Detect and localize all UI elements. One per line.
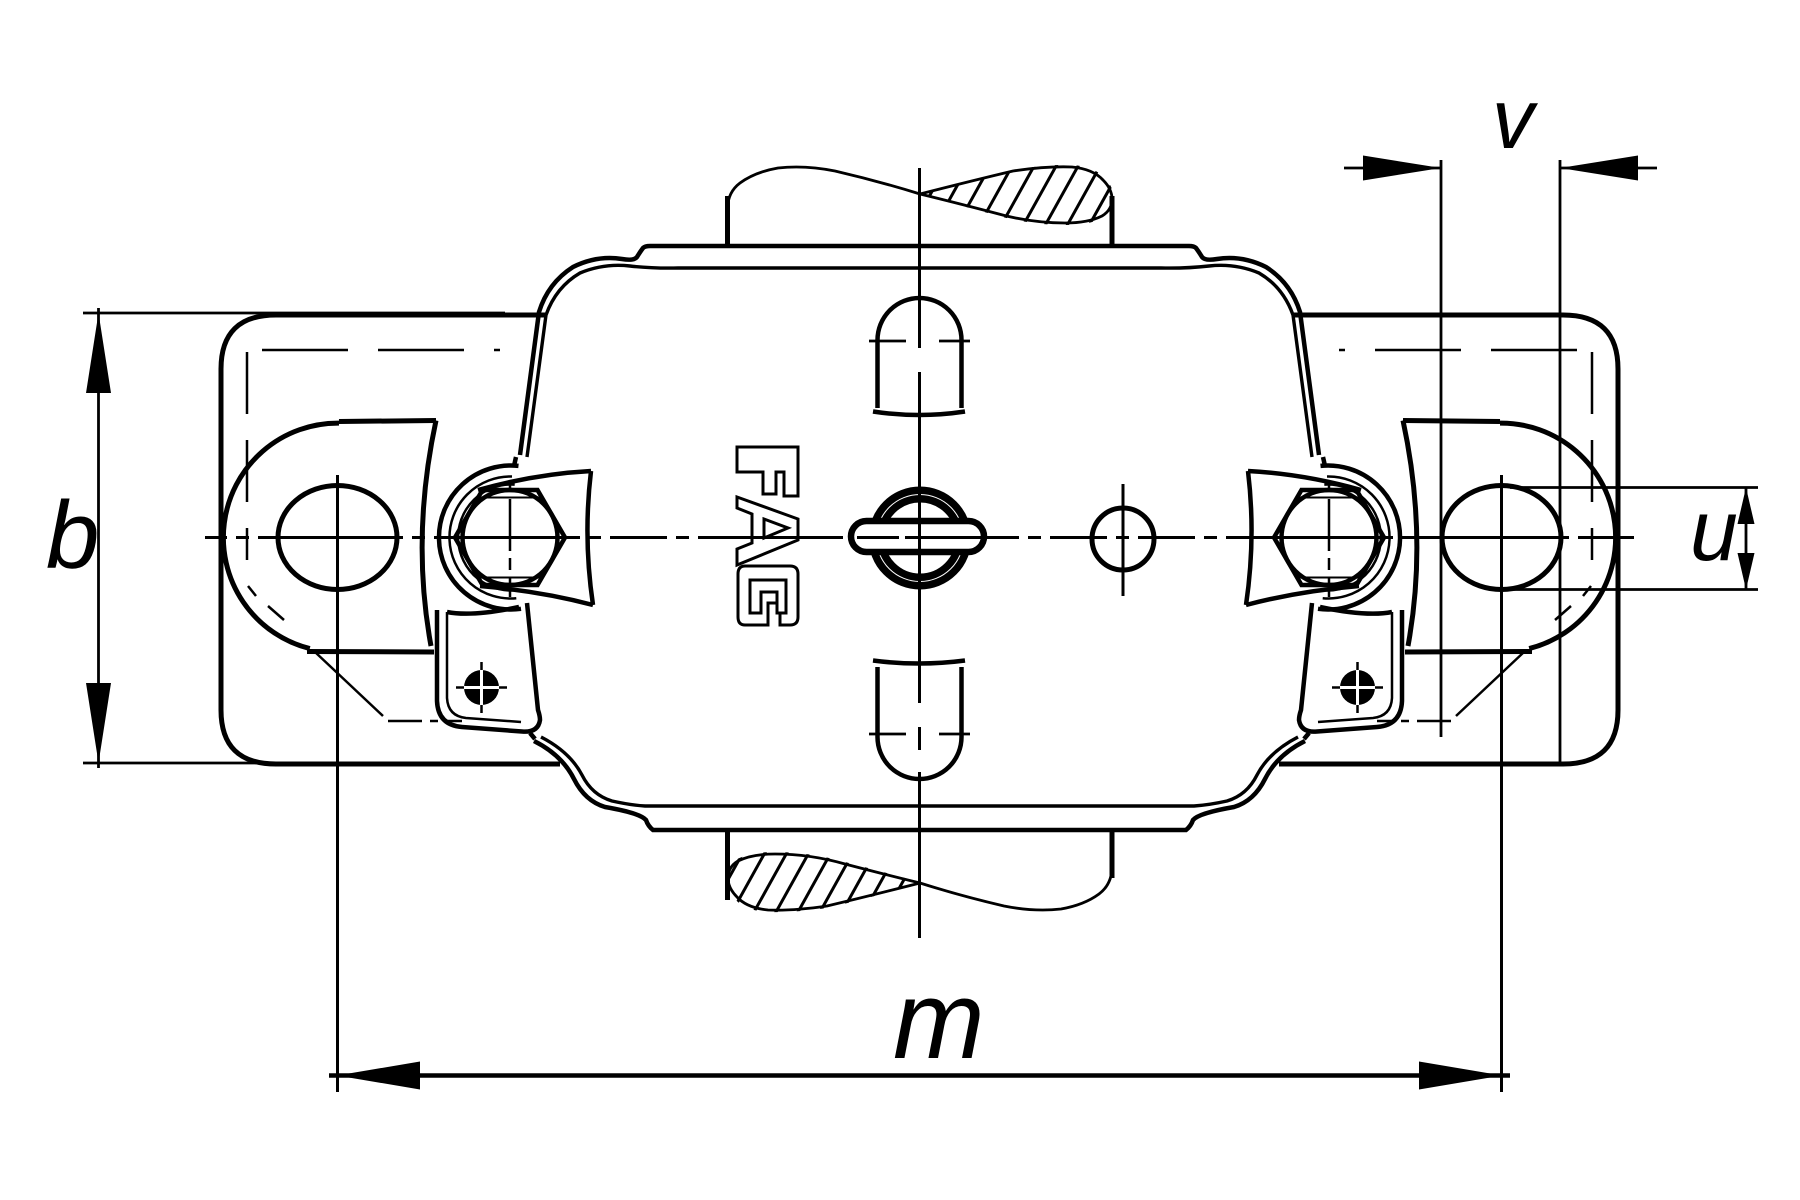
svg-text:v: v — [1492, 72, 1539, 166]
svg-text:m: m — [893, 959, 985, 1082]
svg-text:u: u — [1690, 483, 1738, 579]
svg-text:b: b — [46, 482, 99, 589]
